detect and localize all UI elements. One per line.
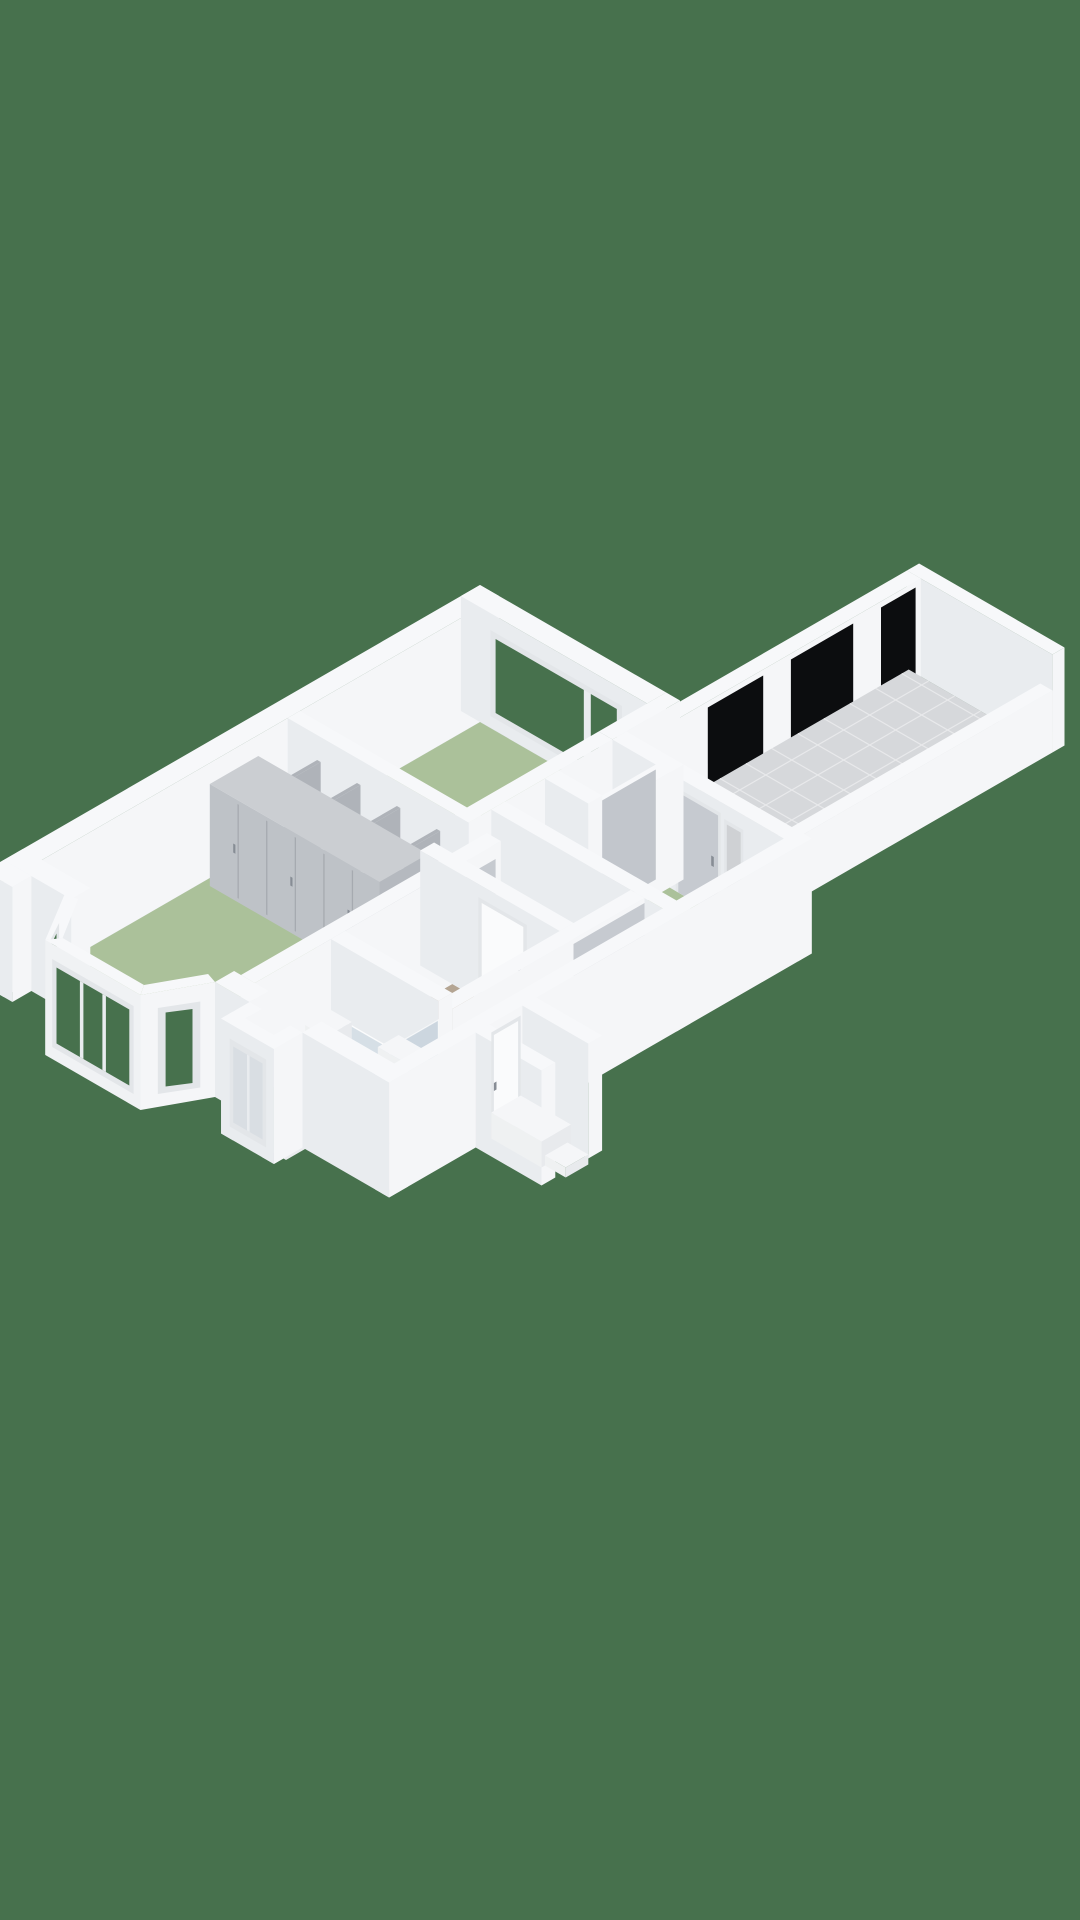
floorplan-stage <box>0 0 1080 1920</box>
wardrobe-handle-2 <box>290 877 292 887</box>
outer-wall-sw-3-face-se <box>389 1072 408 1198</box>
balcony-door-handle <box>711 856 714 868</box>
balcony-end-wall-face-se <box>1052 648 1064 753</box>
wardrobe-groove-2 <box>266 821 267 916</box>
bath-window-mullion <box>247 1055 250 1133</box>
outer-wall-west-jog-face-sw <box>0 871 12 1002</box>
floorplan-3d-render <box>0 0 1080 1920</box>
bath-bay-front-wall-face-se <box>274 1042 286 1164</box>
wardrobe-groove-3 <box>295 837 296 932</box>
bay-front-mullion-2 <box>102 994 106 1072</box>
wardrobe-handle-1 <box>233 844 235 854</box>
porch-wall-1-face-se <box>588 1036 602 1159</box>
wardrobe-groove-1 <box>238 804 239 899</box>
bay-front-mullion-1 <box>80 981 84 1059</box>
bay-chamfer-right-window-glass <box>166 1009 193 1087</box>
entry-door-handle <box>494 1082 497 1092</box>
outer-wall-west-jog-face-se <box>12 876 31 1002</box>
